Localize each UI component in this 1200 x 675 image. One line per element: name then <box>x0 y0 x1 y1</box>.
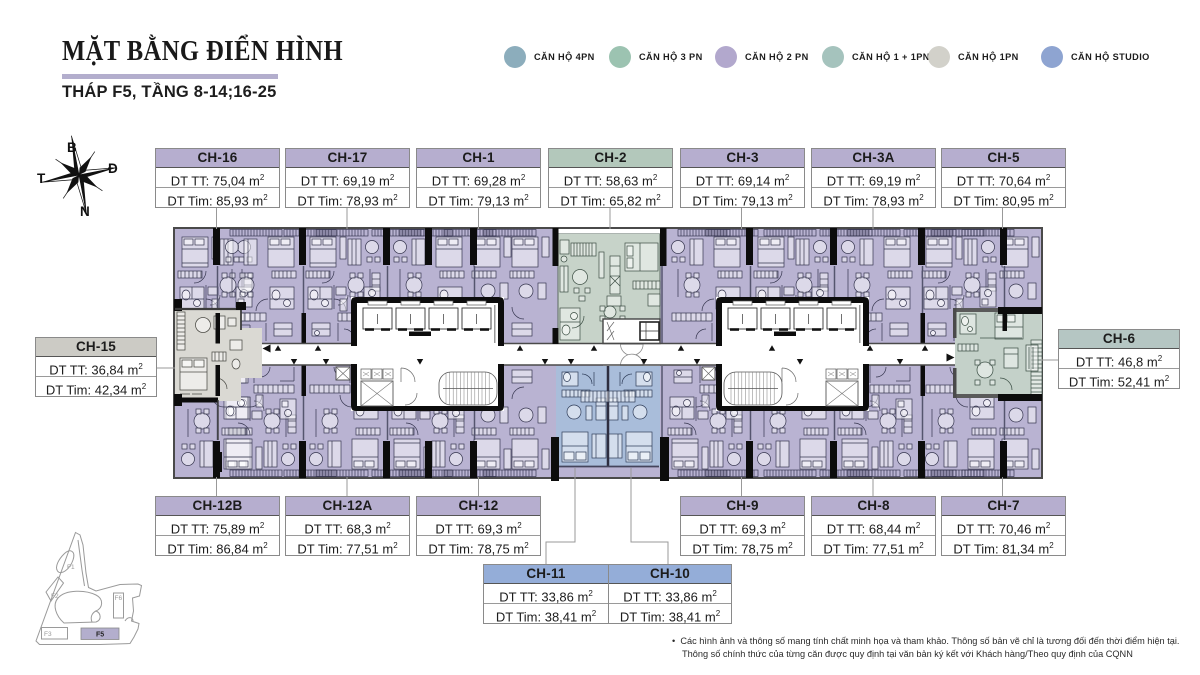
svg-text:Đ: Đ <box>108 161 118 176</box>
svg-text:F2: F2 <box>51 593 59 600</box>
svg-text:B: B <box>67 140 77 155</box>
svg-text:F6: F6 <box>115 595 123 602</box>
svg-text:T: T <box>37 171 46 186</box>
svg-text:F3: F3 <box>44 631 52 638</box>
svg-text:F5: F5 <box>96 632 104 639</box>
svg-text:F1: F1 <box>67 564 75 571</box>
svg-text:N: N <box>80 204 90 219</box>
